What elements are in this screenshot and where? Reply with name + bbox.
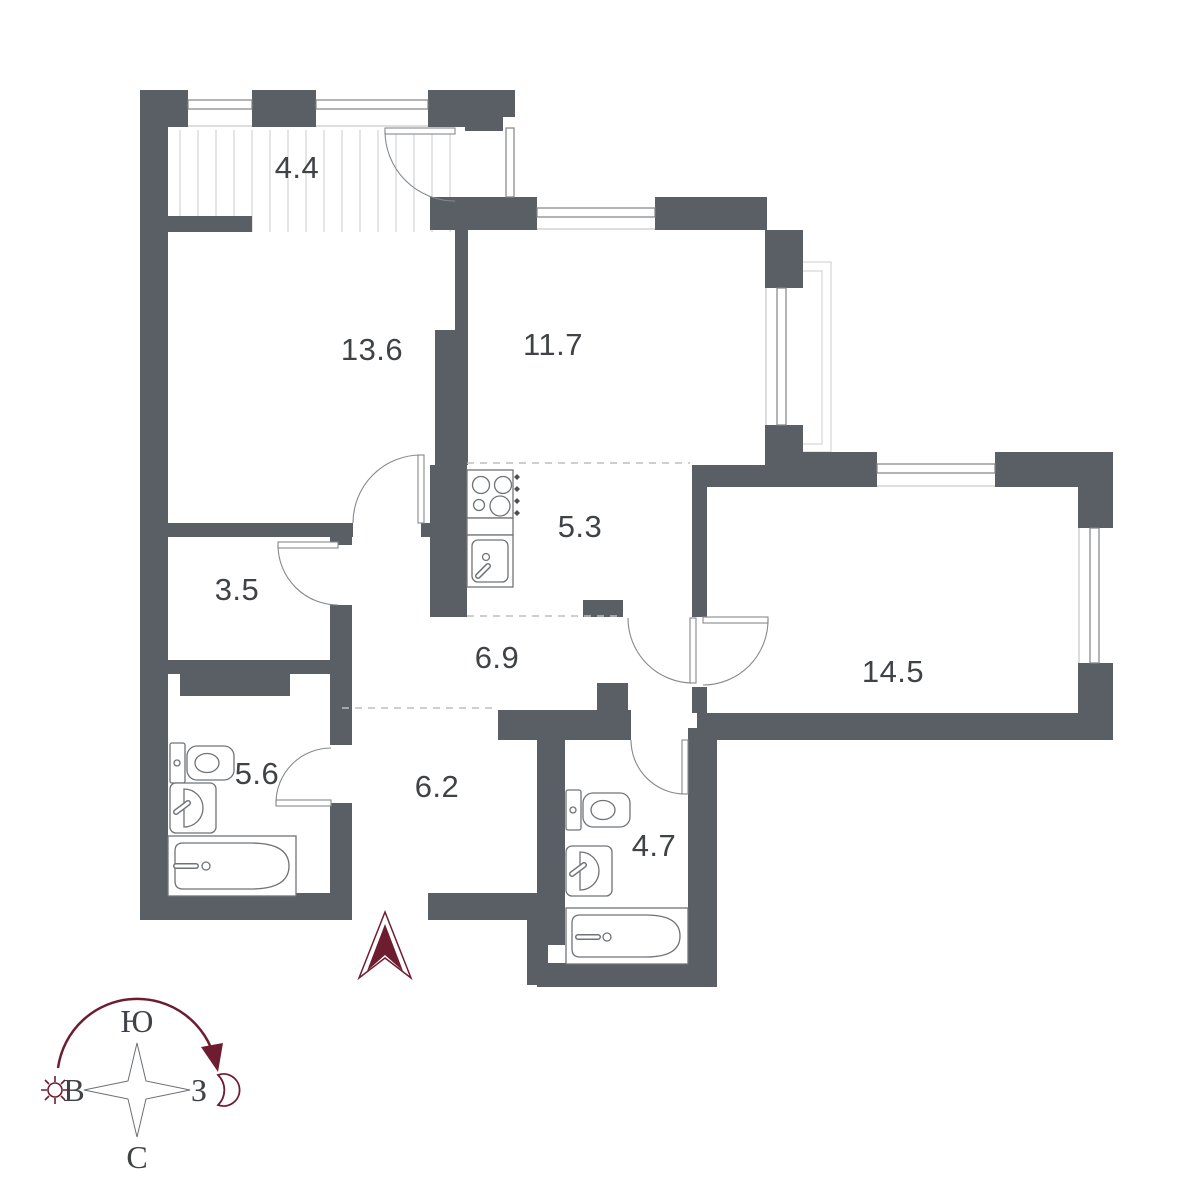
compass-label-south: Ю — [121, 1003, 154, 1039]
room-label-room: 11.7 — [523, 327, 583, 362]
entrance-arrow-icon — [359, 912, 411, 978]
room-label-hallway: 6.2 — [415, 769, 460, 804]
washbasin-icon-2 — [566, 846, 612, 896]
compass-label-west: З — [191, 1072, 207, 1108]
door-hall-passage — [628, 618, 696, 683]
bathtub-icon — [168, 836, 296, 896]
stove-icon — [467, 470, 520, 535]
room-label-living-room: 14.5 — [862, 654, 924, 689]
toilet-icon — [170, 743, 234, 783]
door-bathroom-5-6 — [276, 748, 331, 806]
room-label-bathroom-1: 5.6 — [235, 756, 280, 791]
room-labels: 4.4 13.6 11.7 5.3 3.5 6.9 14.5 5.6 6.2 4… — [215, 150, 924, 863]
compass-label-north: С — [126, 1139, 147, 1175]
floor-plan-page: 4.4 13.6 11.7 5.3 3.5 6.9 14.5 5.6 6.2 4… — [0, 0, 1200, 1200]
sun-icon — [41, 1076, 69, 1104]
room-label-hall: 6.9 — [475, 640, 520, 675]
room-label-loggia: 4.4 — [275, 150, 320, 185]
door-room-13-6 — [353, 455, 424, 523]
kitchen-sink-icon — [467, 535, 513, 587]
moon-icon — [218, 1074, 240, 1106]
door-storage-3-5 — [278, 542, 338, 605]
balcony-outline — [803, 262, 831, 452]
sun-path-arrowhead — [201, 1043, 223, 1072]
room-label-bathroom-2: 4.7 — [632, 828, 677, 863]
toilet-icon-2 — [566, 790, 630, 830]
room-label-storage: 3.5 — [215, 572, 260, 607]
washbasin-icon — [170, 783, 216, 833]
bathtub-icon-2 — [566, 908, 688, 964]
windows — [188, 90, 1113, 663]
floor-plan: 4.4 13.6 11.7 5.3 3.5 6.9 14.5 5.6 6.2 4… — [0, 0, 1200, 1200]
compass-rose: Ю С В З — [41, 999, 240, 1175]
door-bathroom-4-7 — [631, 740, 688, 794]
room-label-bedroom: 13.6 — [341, 332, 403, 367]
room-label-kitchen: 5.3 — [558, 509, 603, 544]
door-room-14-5 — [703, 617, 768, 685]
